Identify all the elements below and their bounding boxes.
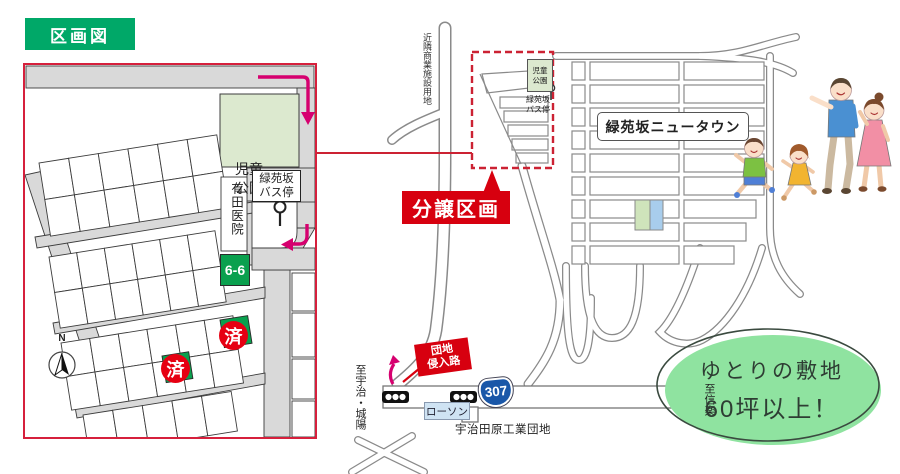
sale-label-pointer <box>483 170 501 193</box>
flyer-map-page: 区画図 <box>0 0 900 474</box>
lot-number-badge: 6-6 <box>220 254 250 286</box>
lot-map-park <box>220 94 299 167</box>
route-number-label: 307 <box>479 378 513 403</box>
girl-illustration <box>781 144 817 201</box>
commercial-site-label: 近隣商業施設用地 <box>420 33 434 115</box>
compass-north-label: N <box>54 333 70 344</box>
map-title-badge: 区画図 <box>25 18 135 50</box>
clinic-label: 有田医院 <box>226 182 246 254</box>
newtown-park-block <box>635 200 663 230</box>
sold-badge: 済 <box>161 354 190 383</box>
callout-text: ゆとりの敷地 60坪以上！ <box>658 355 886 425</box>
traffic-light-icon <box>382 391 409 403</box>
area-park-label: 児童 公園 <box>527 59 553 92</box>
callout-line1: ゆとりの敷地 <box>658 355 886 385</box>
industrial-park-label: 宇治田原工業団地 <box>455 421 551 437</box>
newtown-label: 緑苑坂ニュータウン <box>597 112 749 141</box>
compass-icon <box>49 352 75 378</box>
area-bus-stop-label: 緑苑坂 バス停 <box>518 95 558 115</box>
lot-map-bus-stop-label: 緑苑坂 バス停 <box>252 170 301 202</box>
sold-badge: 済 <box>219 321 248 350</box>
sale-area-label: 分譲区画 <box>402 191 510 224</box>
mom-illustration <box>857 93 891 192</box>
callout-line2: 60坪以上！ <box>658 389 886 424</box>
to-uji-joyo-label: 至宇治・城陽 <box>352 364 368 444</box>
lot-map: 児童 公園 緑苑坂 バス停 有田医院 6-6 済 済 N <box>23 63 317 439</box>
lawson-label: ローソン <box>424 402 470 420</box>
dad-illustration <box>812 78 856 194</box>
newtown-blocks <box>572 62 764 264</box>
